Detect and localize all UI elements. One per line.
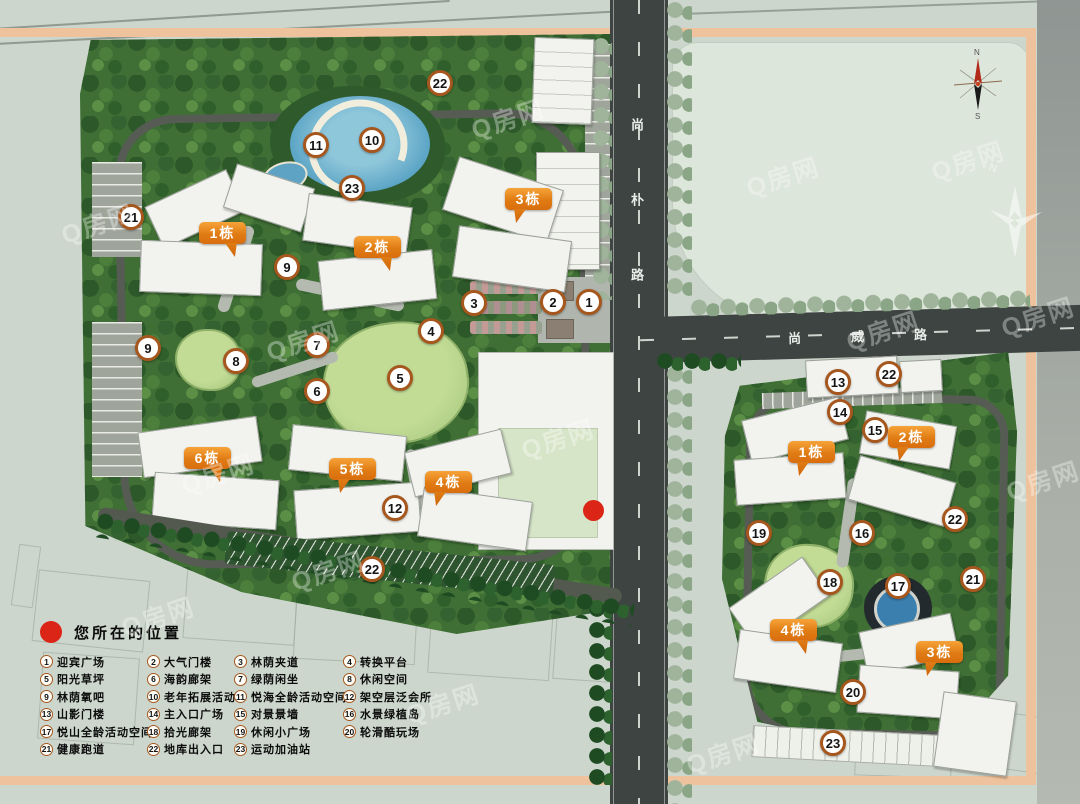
legend-item-number: 2 xyxy=(147,655,160,668)
map-marker-22: 22 xyxy=(942,506,968,532)
legend-item-label: 林荫氧吧 xyxy=(57,689,105,705)
legend-item-label: 轮滑酷玩场 xyxy=(360,724,420,740)
legend-item-label: 山影门楼 xyxy=(57,706,105,722)
map-marker-6: 6 xyxy=(304,378,330,404)
legend-item-number: 7 xyxy=(234,673,247,686)
map-marker-1: 1 xyxy=(576,289,602,315)
legend-item-13: 13山影门楼 xyxy=(40,708,147,721)
legend-item-label: 阳光草坪 xyxy=(57,671,105,687)
legend-item-number: 4 xyxy=(343,655,356,668)
legend-item-23: 23运动加油站 xyxy=(234,743,343,756)
building-label-right-3栋: 3栋 xyxy=(916,641,963,663)
legend-item-number: 11 xyxy=(234,690,247,703)
legend-item-label: 海韵廊架 xyxy=(164,671,212,687)
map-marker-3: 3 xyxy=(461,290,487,316)
map-marker-11: 11 xyxy=(303,132,329,158)
legend-item-label: 转换平台 xyxy=(360,654,408,670)
legend-item-10: 10老年拓展活动 xyxy=(147,690,234,703)
map-marker-15: 15 xyxy=(862,417,888,443)
legend-item-number: 18 xyxy=(147,725,160,738)
alley-trellis xyxy=(470,321,542,334)
legend-item-number: 13 xyxy=(40,708,53,721)
compass-rose-icon xyxy=(948,48,1008,122)
legend-item-number: 6 xyxy=(147,673,160,686)
street-trees xyxy=(666,364,692,804)
legend-item-6: 6海韵廊架 xyxy=(147,673,234,686)
legend-item-label: 水景绿植岛 xyxy=(360,706,420,722)
legend-item-number: 14 xyxy=(147,708,160,721)
legend-item-19: 19休闲小广场 xyxy=(234,725,343,738)
legend-item-number: 17 xyxy=(40,725,53,738)
map-marker-4: 4 xyxy=(418,318,444,344)
map-marker-16: 16 xyxy=(849,520,875,546)
legend-title: 您所在的位置 xyxy=(40,621,447,643)
street-trees xyxy=(656,352,741,374)
map-marker-23: 23 xyxy=(820,730,846,756)
map-marker-22: 22 xyxy=(427,70,453,96)
legend-item-9: 9林荫氧吧 xyxy=(40,690,147,703)
building-label-left-6栋: 6栋 xyxy=(184,447,231,469)
offsite-road-line xyxy=(670,0,1080,15)
map-marker-22: 22 xyxy=(359,556,385,582)
map-marker-2: 2 xyxy=(540,289,566,315)
map-marker-13: 13 xyxy=(825,369,851,395)
legend-item-label: 对景景墙 xyxy=(251,706,299,722)
legend-item-2: 2大气门楼 xyxy=(147,655,234,668)
legend-item-label: 休闲小广场 xyxy=(251,724,311,740)
legend-item-label: 老年拓展活动 xyxy=(164,689,236,705)
site-plan-image: 尚朴路 尚威路 N xyxy=(0,0,1080,804)
legend-item-number: 10 xyxy=(147,690,160,703)
street-trees xyxy=(666,0,692,296)
compass-south-label: S xyxy=(975,112,980,121)
gatehouse-building xyxy=(899,359,943,393)
map-marker-20: 20 xyxy=(840,679,866,705)
outparcel-building xyxy=(933,691,1017,777)
map-marker-18: 18 xyxy=(817,569,843,595)
map-marker-9: 9 xyxy=(274,254,300,280)
building-label-left-1栋: 1栋 xyxy=(199,222,246,244)
legend-item-label: 悦山全龄活动空间 xyxy=(57,724,153,740)
legend-item-22: 22地库出入口 xyxy=(147,743,234,756)
legend-item-number: 16 xyxy=(343,708,356,721)
legend-item-label: 迎宾广场 xyxy=(57,654,105,670)
street-trees xyxy=(588,600,612,785)
legend-item-number: 3 xyxy=(234,655,247,668)
street-retail-building xyxy=(532,37,595,125)
legend-item-3: 3林荫夹道 xyxy=(234,655,343,668)
legend-item-15: 15对景景墙 xyxy=(234,708,343,721)
legend-item-7: 7绿荫闲坐 xyxy=(234,673,343,686)
compass-watermark-icon: N xyxy=(980,158,1050,268)
map-marker-12: 12 xyxy=(382,495,408,521)
svg-text:N: N xyxy=(987,161,998,175)
map-marker-10: 10 xyxy=(359,127,385,153)
building-1-slab xyxy=(139,240,263,296)
legend-item-number: 5 xyxy=(40,673,53,686)
legend-item-label: 架空层泛会所 xyxy=(360,689,432,705)
offsite-road-line xyxy=(0,0,450,30)
location-dot-icon xyxy=(40,621,62,643)
map-marker-21: 21 xyxy=(118,204,144,230)
legend-item-label: 健康跑道 xyxy=(57,741,105,757)
legend-item-14: 14主入口广场 xyxy=(147,708,234,721)
map-marker-14: 14 xyxy=(827,399,853,425)
legend-item-label: 拾光廊架 xyxy=(164,724,212,740)
map-marker-23: 23 xyxy=(339,175,365,201)
legend-item-number: 15 xyxy=(234,708,247,721)
legend-item-number: 8 xyxy=(343,673,356,686)
legend-title-text: 您所在的位置 xyxy=(74,622,182,643)
legend-item-11: 11悦海全龄活动空间 xyxy=(234,690,343,703)
legend-item-label: 运动加油站 xyxy=(251,741,311,757)
map-marker-8: 8 xyxy=(223,348,249,374)
legend-item-number: 20 xyxy=(343,725,356,738)
offsite-gray-strip xyxy=(1037,0,1080,804)
legend-item-label: 主入口广场 xyxy=(164,706,224,722)
legend-item-number: 9 xyxy=(40,690,53,703)
map-marker-17: 17 xyxy=(885,573,911,599)
gate-structure xyxy=(546,319,574,339)
road-edgeline xyxy=(664,0,665,804)
building-label-right-1栋: 1栋 xyxy=(788,441,835,463)
legend-item-18: 18拾光廊架 xyxy=(147,725,234,738)
frame-right xyxy=(1026,28,1036,784)
map-marker-21: 21 xyxy=(960,566,986,592)
vertical-road-label: 尚朴路 xyxy=(627,118,646,343)
legend-item-label: 悦海全龄活动空间 xyxy=(251,689,347,705)
building-label-right-4栋: 4栋 xyxy=(770,619,817,641)
legend-item-label: 大气门楼 xyxy=(164,654,212,670)
legend-item-20: 20轮滑酷玩场 xyxy=(343,725,447,738)
legend-item-label: 地库出入口 xyxy=(164,741,224,757)
map-marker-7: 7 xyxy=(304,332,330,358)
building-label-left-4栋: 4栋 xyxy=(425,471,472,493)
legend-item-label: 休闲空间 xyxy=(360,671,408,687)
building-label-left-5栋: 5栋 xyxy=(329,458,376,480)
legend-item-number: 23 xyxy=(234,743,247,756)
legend-item-label: 林荫夹道 xyxy=(251,654,299,670)
building-label-left-3栋: 3栋 xyxy=(505,188,552,210)
legend-item-12: 12架空层泛会所 xyxy=(343,690,447,703)
legend-item-label: 绿荫闲坐 xyxy=(251,671,299,687)
building-label-left-2栋: 2栋 xyxy=(354,236,401,258)
legend-item-4: 4转换平台 xyxy=(343,655,447,668)
legend-item-5: 5阳光草坪 xyxy=(40,673,147,686)
legend-item-number: 1 xyxy=(40,655,53,668)
legend-item-number: 19 xyxy=(234,725,247,738)
map-marker-22: 22 xyxy=(876,361,902,387)
legend-grid: 1迎宾广场2大气门楼3林荫夹道4转换平台5阳光草坪6海韵廊架7绿荫闲坐8休闲空间… xyxy=(40,655,447,756)
legend-item-16: 16水景绿植岛 xyxy=(343,708,447,721)
legend-item-number: 21 xyxy=(40,743,53,756)
map-marker-5: 5 xyxy=(387,365,413,391)
compass: N S xyxy=(948,48,1008,122)
legend-item-21: 21健康跑道 xyxy=(40,743,147,756)
map-marker-19: 19 xyxy=(746,520,772,546)
map-marker-9: 9 xyxy=(135,335,161,361)
horizontal-road-label: 尚威路 xyxy=(788,323,977,347)
legend-item-8: 8休闲空间 xyxy=(343,673,447,686)
legend-item-number: 12 xyxy=(343,690,356,703)
legend-item-17: 17悦山全龄活动空间 xyxy=(40,725,147,738)
legend-item-number: 22 xyxy=(147,743,160,756)
frame-bottom xyxy=(0,776,1036,785)
legend-item-1: 1迎宾广场 xyxy=(40,655,147,668)
current-location-dot xyxy=(583,500,604,521)
building-label-right-2栋: 2栋 xyxy=(888,426,935,448)
legend: 您所在的位置 1迎宾广场2大气门楼3林荫夹道4转换平台5阳光草坪6海韵廊架7绿荫… xyxy=(40,621,447,756)
